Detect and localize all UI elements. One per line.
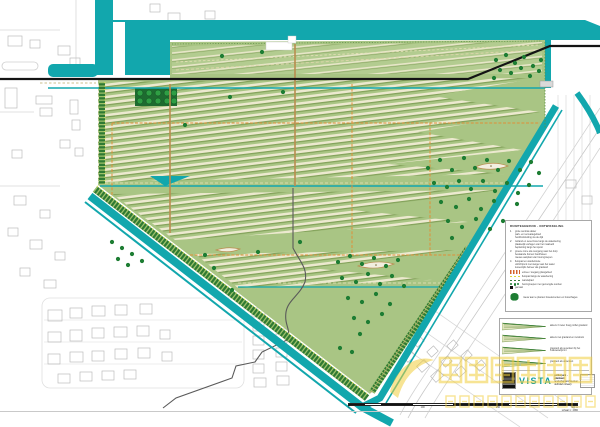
section-profile-row: grasrand als oeverkant bij het zuidweste… [502,345,589,355]
field-profile-icon [502,321,548,331]
scale-label: 100 [421,406,425,409]
tree-icon [438,158,442,162]
tree-icon [473,166,477,170]
field-profile-icon [502,333,548,343]
tree-icon [485,158,489,162]
tree-icon [481,179,485,183]
context-building [70,58,80,65]
tree-icon [519,66,523,70]
tree-icon [358,332,362,336]
tree-cluster-icon [510,293,519,301]
tree-icon [374,292,378,296]
context-building [115,305,127,315]
tree-icon [384,264,388,268]
legend-item: 3groene zone als overgang naar het dorpb… [510,250,588,259]
scale-segment [453,404,509,405]
scale-bar-labels: 0100250500 m [348,406,578,409]
field-band-north [172,42,542,74]
field-profile-icon [502,358,548,368]
context-building [115,349,127,359]
tree-icon [498,68,502,72]
context-building [75,148,83,156]
tree-icon [515,202,519,206]
legend-item: 2rietland en oeverzone langs de waterker… [510,240,588,249]
tree-icon [298,240,302,244]
tree-icon [126,263,130,267]
context-building [205,11,215,19]
context-building [160,330,170,339]
context-building [44,280,56,288]
tree-icon [380,312,384,316]
context-building [277,376,289,385]
section-rows: akkers 3 meter hoog profiel graslandakke… [502,321,589,368]
context-building [40,108,52,116]
tree-icon [348,254,352,258]
legend-item: 1grote centrale akkerpark- en recreatieg… [510,230,588,239]
context-building [60,140,70,148]
yellow-symbol-icon [510,276,520,278]
legend-symbol-green: wandelpad [510,279,588,282]
context-building [461,350,472,361]
legend-note: nieuw aan te planten boselementen en bos… [510,293,588,301]
tree-icon [450,168,454,172]
legend-note-label: nieuw aan te planten boselementen en bos… [523,296,578,299]
legend-symbol-square: gemaal [510,286,588,289]
context-building [14,196,26,205]
context-building [30,40,40,48]
tree-icon [130,252,134,256]
tree-icon [256,250,260,254]
tree-icon [492,199,496,203]
tree-icon [439,200,443,204]
context-building [276,362,287,371]
tree-icon [230,288,234,292]
context-building [150,4,160,12]
tree-icon [539,58,543,62]
context-building [48,354,60,364]
context-building [137,326,149,336]
context-building [36,96,52,104]
context-building [8,36,22,46]
scale-bar: 0100250500 m schaal 1 : 2000 [348,403,578,409]
tree-icon [507,159,511,163]
legend-symbol-trees: boomgroepen met gemengde soorten [510,283,588,286]
tree-icon [183,123,187,127]
tree-icon [450,236,454,240]
square-symbol-icon [510,286,513,289]
tree-icon [527,183,531,187]
tree-icon [494,58,498,62]
key-map-thumbnail [580,374,595,388]
context-building [12,150,22,158]
tree-icon [366,320,370,324]
sheet-margin-line [0,411,600,412]
tree-icon [120,246,124,250]
legend-symbol-orange: entree / toegang plangebied [510,270,588,274]
section-profile-row: akkers met grasland en rietstrook [502,333,589,343]
tree-icon [513,61,517,65]
sheet-name: definitief ontwerp [554,384,578,387]
tree-icon [140,259,144,263]
context-building [427,346,438,357]
legend-symbols: entree / toegang plangebiedfietspad lang… [510,270,588,289]
tree-icon [390,274,394,278]
context-building [80,372,92,381]
section-profile-row: grasrand als akkerkant [502,358,589,368]
tree-icon [474,217,478,221]
tree-icon [529,160,533,164]
context-building [114,327,127,337]
tree-icon [220,54,224,58]
tree-icon [346,296,350,300]
legend-panel: RUIMTEGEBRUIK - ONTWIKKELING 1grote cent… [505,220,592,312]
tree-icon [504,53,508,57]
context-building [92,351,104,361]
tree-icon [509,71,513,75]
aerial-photo-thumbnail [502,372,516,389]
context-building [58,374,70,383]
tree-icon [505,181,509,185]
firm-logo: VISTA [519,376,552,386]
pond-dot [375,264,377,266]
tree-icon [445,185,449,189]
title-block-text: polderpark - plankaart landschapsarchite… [554,375,578,387]
context-building [20,268,30,276]
tree-icon [372,256,376,260]
tree-icon [454,205,458,209]
context-building [92,328,104,338]
drawing-sheet: RUIMTEGEBRUIK - ONTWIKKELING 1grote cent… [0,0,600,427]
tree-icon [402,284,406,288]
scale-segment [365,404,381,405]
tree-icon [378,282,382,286]
scale-segment [381,404,413,405]
tree-icon [457,179,461,183]
section-profile-row: akkers 3 meter hoog profiel grasland [502,321,589,331]
tree-icon [469,187,473,191]
legend-title: RUIMTEGEBRUIK - ONTWIKKELING [510,224,588,228]
context-building [70,308,82,318]
scale-segment [509,404,557,405]
context-building [48,332,61,342]
context-building [40,210,50,218]
pond-dot [490,165,492,167]
context-building [70,352,83,362]
tree-icon [203,253,207,257]
scale-label: 250 [496,406,500,409]
tree-icon [212,266,216,270]
context-building [582,196,592,204]
context-building [48,310,62,321]
sections-panel: akkers 3 meter hoog profiel graslandakke… [499,318,592,395]
tree-icon [537,69,541,73]
context-building [140,304,152,314]
title-block: VISTA polderpark - plankaart landschapsa… [502,370,589,390]
context-building [162,352,172,361]
tree-icon [340,276,344,280]
tree-icon [516,191,520,195]
tree-icon [496,168,500,172]
tree-icon [462,156,466,160]
tree-icon [388,302,392,306]
tree-icon [281,90,285,94]
tree-icon [467,197,471,201]
tree-icon [426,166,430,170]
context-building [102,371,114,380]
tree-icon [352,316,356,320]
scale-segment [557,404,577,405]
field-profile-icon [502,345,548,355]
scale-segment [413,404,453,405]
tree-icon [492,76,496,80]
tree-icon [228,95,232,99]
context-building [92,306,105,316]
context-building [5,88,17,108]
tree-icon [350,350,354,354]
tree-icon [116,257,120,261]
context-building [72,120,80,130]
tree-icon [446,219,450,223]
dike-west [102,82,105,184]
legend-item: 4fietspad en wandelrouteuitzichtpunt met… [510,260,588,269]
scale-label: 0 [348,406,349,409]
green-symbol-icon [510,280,520,282]
context-building [138,348,150,358]
canal-bridge-gap [113,22,125,75]
tree-icon [460,225,464,229]
trees-symbol-icon [510,283,520,286]
tree-icon [493,189,497,193]
context-building [254,378,266,387]
tree-icon [537,171,541,175]
tree-icon [528,74,532,78]
tree-icon [432,181,436,185]
bridge-icon [540,81,553,87]
context-building [124,370,136,379]
tree-icon [338,346,342,350]
legend-symbol-yellow: fietspad langs de waterkering [510,275,588,278]
context-building [70,100,78,114]
tree-icon [110,240,114,244]
tree-icon [518,168,522,172]
context-building [70,330,82,341]
context-building [253,364,264,373]
scale-segment [349,404,365,405]
context-building [8,228,18,236]
context-building [30,240,42,249]
tree-icon [396,258,400,262]
context-building [55,252,65,260]
context-building [58,46,70,55]
tree-icon [354,280,358,284]
tree-icon [531,64,535,68]
tree-icon [488,227,492,231]
tree-icon [336,260,340,264]
tree-icon [260,50,264,54]
legend-items: 1grote centrale akkerpark- en recreatieg… [510,230,588,270]
tree-icon [360,300,364,304]
tree-icon [360,262,364,266]
tree-icon [366,272,370,276]
context-building [475,360,486,371]
tree-icon [522,55,526,59]
orange-symbol-icon [510,270,520,274]
tree-icon [479,207,483,211]
